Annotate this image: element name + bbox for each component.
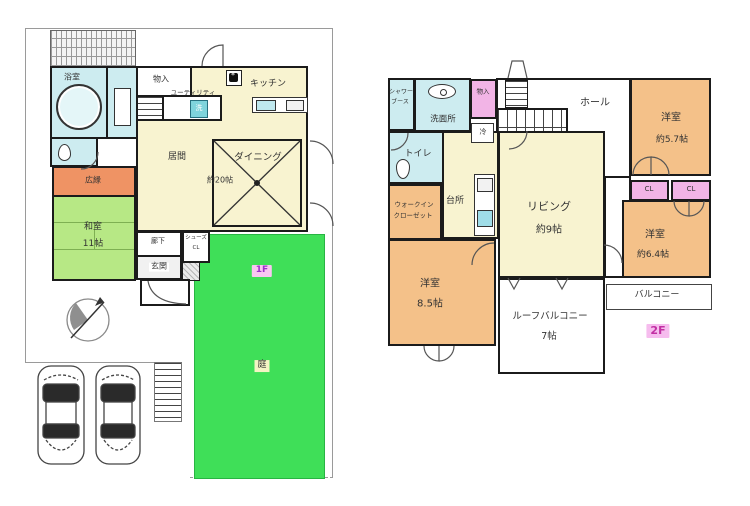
stove-icon bbox=[286, 100, 304, 111]
label-bedroom64-size: 約6.4帖 bbox=[637, 251, 669, 261]
washbasin-icon bbox=[428, 84, 456, 99]
stairs-2f-upper bbox=[505, 80, 528, 108]
label-balcony: バルコニー bbox=[635, 291, 680, 301]
label-dining: ダイニング bbox=[234, 153, 282, 163]
outdoor-stairs bbox=[154, 362, 182, 422]
label-shoes-1: シューズ bbox=[185, 235, 207, 241]
bathtub-icon bbox=[56, 84, 102, 130]
label-hiroen: 広縁 bbox=[85, 177, 101, 186]
roof-balcony-2f bbox=[498, 278, 605, 374]
car-icon bbox=[38, 366, 84, 464]
label-wic-2: クローゼット bbox=[394, 212, 433, 219]
room-storage-2f bbox=[470, 79, 497, 119]
label-kitchen-2f: 台所 bbox=[446, 197, 464, 207]
label-washitsu-size: 11帖 bbox=[83, 240, 103, 250]
label-utility: ユーティリティ bbox=[171, 89, 216, 96]
fridge-icon-1f: * bbox=[226, 70, 242, 86]
room-toilet-1f bbox=[50, 137, 98, 167]
label-storage-2f: 物入 bbox=[477, 88, 490, 95]
label-bedroom57: 洋室 bbox=[661, 113, 681, 124]
label-roof-balcony-size: 7帖 bbox=[541, 332, 557, 342]
roof-hatch-area bbox=[50, 30, 136, 67]
toilet-icon bbox=[58, 144, 71, 161]
label-hall-2f: ホール bbox=[580, 98, 610, 109]
room-bedroom57-2f bbox=[630, 78, 711, 176]
label-living-size-1f: 約20帖 bbox=[207, 177, 233, 186]
label-garden: 庭 bbox=[254, 360, 269, 372]
label-roof-balcony: ルーフバルコニー bbox=[512, 312, 587, 322]
floor-plan-canvas: * bbox=[0, 0, 750, 506]
room-bedroom85-2f bbox=[388, 239, 496, 346]
label-shower-2: ブース bbox=[391, 100, 409, 107]
kitchen-counter-2f bbox=[474, 174, 495, 236]
entrance-porch bbox=[140, 279, 190, 306]
room-bedroom64-2f bbox=[622, 200, 711, 278]
floor1-badge: 1F bbox=[252, 265, 272, 277]
room-kitchen-2f bbox=[442, 131, 499, 239]
label-toilet-2f: トイレ bbox=[404, 150, 431, 160]
label-bathroom: 浴室 bbox=[64, 74, 80, 83]
floor2-badge: 2F bbox=[646, 324, 669, 338]
label-entrance: 玄関 bbox=[149, 263, 169, 272]
sink-icon-2f bbox=[477, 210, 493, 227]
label-corridor: 廊下 bbox=[151, 238, 165, 246]
room-washitsu-1f bbox=[52, 195, 136, 281]
label-washer: 洗 bbox=[196, 105, 203, 113]
label-washroom: 洗面所 bbox=[430, 115, 456, 124]
label-bedroom85-size: 8.5帖 bbox=[417, 299, 443, 310]
vanity-icon bbox=[114, 88, 131, 126]
label-cl2: CL bbox=[687, 186, 696, 194]
label-shoes-2: CL bbox=[193, 245, 200, 251]
label-cl1: CL bbox=[645, 186, 654, 194]
car-icon bbox=[96, 366, 140, 464]
property-line-mid bbox=[25, 362, 155, 363]
label-storage-1f: 物入 bbox=[153, 76, 169, 85]
label-fridge-2f: 冷 bbox=[480, 129, 487, 137]
stairs-1f bbox=[136, 95, 164, 121]
room-changing-1f bbox=[106, 66, 138, 139]
label-living-1f: 居間 bbox=[168, 153, 186, 163]
label-bedroom85: 洋室 bbox=[420, 279, 440, 290]
label-living-size-2f: 約9帖 bbox=[536, 225, 562, 236]
label-bedroom57-size: 約5.7帖 bbox=[656, 136, 688, 146]
label-wic-1: ウォークイン bbox=[395, 201, 434, 208]
compass-icon bbox=[67, 297, 109, 341]
label-shower-1: シャワー bbox=[389, 90, 413, 97]
toilet-icon-2f bbox=[396, 159, 410, 179]
kitchen-counter-1f bbox=[252, 97, 308, 113]
property-line-top bbox=[25, 28, 333, 29]
entrance-tile bbox=[182, 261, 200, 281]
label-bedroom64: 洋室 bbox=[645, 230, 665, 241]
property-line-right bbox=[332, 28, 333, 478]
sink-icon bbox=[256, 100, 276, 111]
label-living-2f: リビング bbox=[527, 201, 571, 213]
label-kitchen-1f: キッチン bbox=[250, 80, 286, 90]
stove-icon-2f bbox=[477, 178, 493, 192]
label-washitsu: 和室 bbox=[84, 223, 102, 233]
property-line-left bbox=[25, 28, 26, 363]
